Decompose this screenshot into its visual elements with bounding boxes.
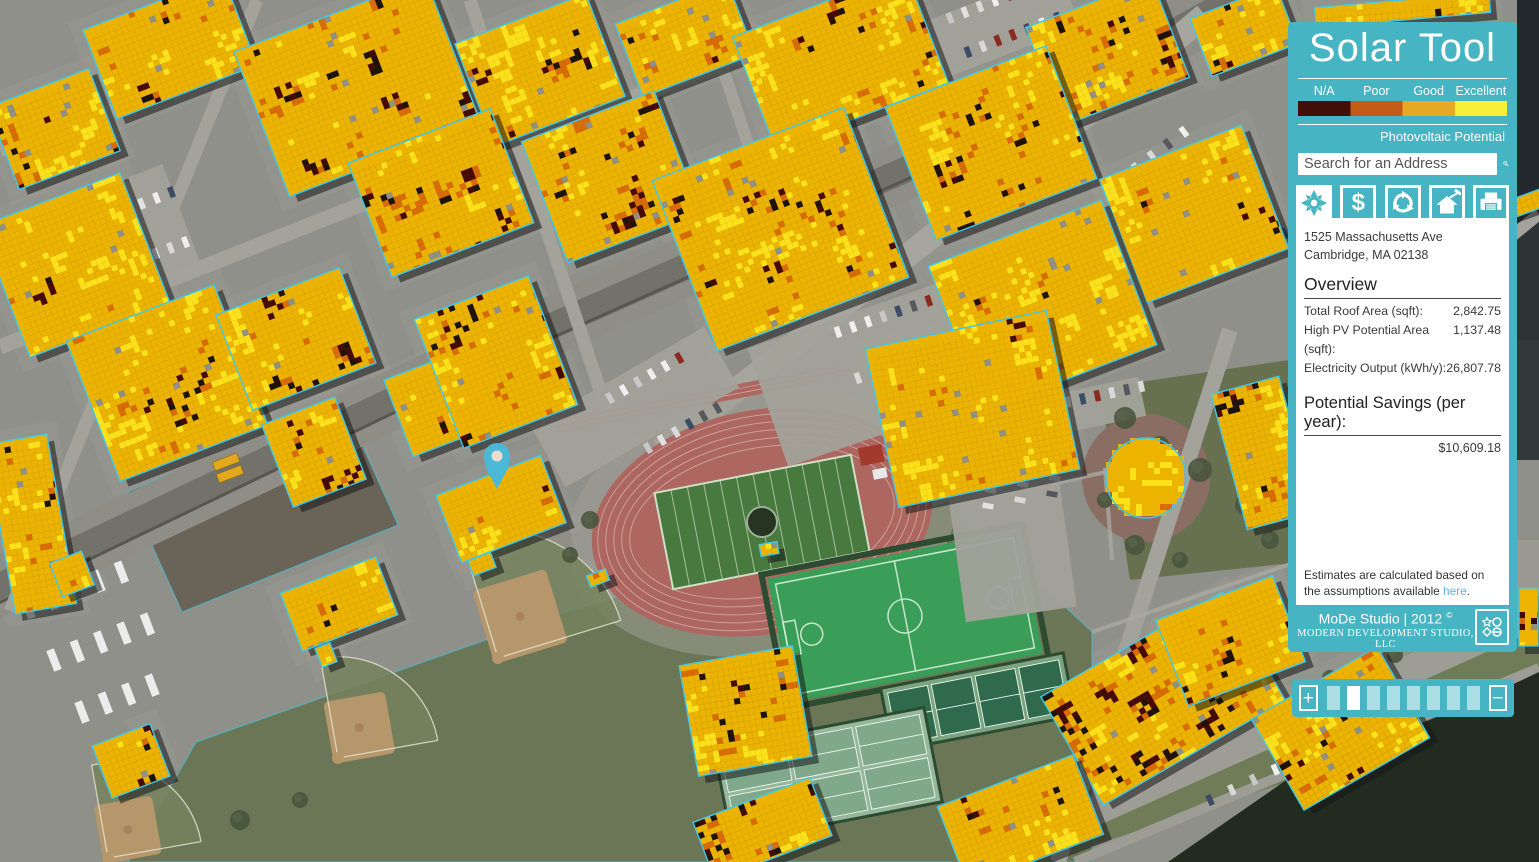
map-pin-center — [492, 451, 503, 462]
divider — [1298, 78, 1507, 79]
divider — [1304, 435, 1501, 436]
divider — [1298, 124, 1507, 125]
assumptions-link[interactable]: here — [1443, 584, 1467, 598]
zoom-level-segment[interactable] — [1467, 686, 1480, 710]
mode-logo — [1475, 609, 1509, 645]
stat-value: 2,842.75 — [1453, 302, 1501, 321]
financial-button[interactable]: $ — [1340, 185, 1376, 221]
savings-heading: Potential Savings (per year): — [1304, 394, 1501, 432]
zoom-level-segment[interactable] — [1347, 686, 1360, 710]
toolbar: $ — [1296, 185, 1509, 221]
search-input[interactable] — [1298, 153, 1497, 175]
solar-layer-button[interactable] — [1296, 185, 1332, 221]
zoom-level-segment[interactable] — [1367, 686, 1380, 710]
stat-row: Electricity Output (kWh/y):26,807.78 — [1304, 359, 1501, 378]
stat-value: 1,137.48 — [1453, 321, 1501, 359]
recycle-button[interactable] — [1385, 185, 1421, 221]
note-text-end: . — [1467, 584, 1470, 598]
assumptions-note: Estimates are calculated based on the as… — [1304, 568, 1501, 599]
legend-label-excellent: Excellent — [1455, 84, 1507, 98]
legend-gradient-bar — [1298, 101, 1507, 116]
stat-row: High PV Potential Area (sqft):1,137.48 — [1304, 321, 1501, 359]
mode-logo-icon — [1480, 615, 1504, 639]
stat-value: 26,807.78 — [1446, 359, 1501, 378]
solar-home-icon — [1433, 189, 1461, 217]
zoom-level-bar — [1327, 686, 1480, 710]
solar-tool-panel: Solar Tool N/A Poor Good Excellent Photo… — [1288, 22, 1517, 652]
legend-label-poor: Poor — [1350, 84, 1402, 98]
zoom-level-segment[interactable] — [1387, 686, 1400, 710]
savings-value: $10,609.18 — [1304, 441, 1501, 455]
printer-icon — [1477, 189, 1505, 217]
zoom-level-segment[interactable] — [1427, 686, 1440, 710]
stats-list: Total Roof Area (sqft):2,842.75High PV P… — [1304, 302, 1501, 378]
stat-label: Total Roof Area (sqft): — [1304, 302, 1423, 321]
solar-home-button[interactable] — [1429, 185, 1465, 221]
legend-label-good: Good — [1403, 84, 1455, 98]
zoom-level-segment[interactable] — [1447, 686, 1460, 710]
stat-label: High PV Potential Area (sqft): — [1304, 321, 1453, 359]
zoom-level-segment[interactable] — [1327, 686, 1340, 710]
legend-label-na: N/A — [1298, 84, 1350, 98]
stat-label: Electricity Output (kWh/y): — [1304, 359, 1446, 378]
legend-caption: Photovoltaic Potential — [1300, 129, 1505, 144]
page-title: Solar Tool — [1288, 26, 1517, 70]
address-line1: 1525 Massachusetts Ave — [1304, 228, 1501, 246]
sun-icon — [1300, 189, 1328, 217]
divider — [1304, 298, 1501, 299]
zoom-in-button[interactable]: + — [1299, 685, 1318, 711]
results-card: 1525 Massachusetts Ave Cambridge, MA 021… — [1296, 218, 1509, 605]
dollar-icon: $ — [1352, 191, 1365, 215]
stat-row: Total Roof Area (sqft):2,842.75 — [1304, 302, 1501, 321]
print-button[interactable] — [1473, 185, 1509, 221]
legend-labels: N/A Poor Good Excellent — [1298, 84, 1507, 98]
zoom-control: + − — [1292, 679, 1514, 717]
panel-footer: MoDe Studio | 2012 © MODERN DEVELOPMENT … — [1288, 605, 1517, 652]
overview-heading: Overview — [1304, 274, 1501, 295]
recycle-icon — [1390, 190, 1416, 216]
search-icon[interactable] — [1503, 152, 1509, 176]
zoom-out-button[interactable]: − — [1489, 685, 1508, 711]
zoom-level-segment[interactable] — [1407, 686, 1420, 710]
address-line2: Cambridge, MA 02138 — [1304, 246, 1501, 264]
copyright-mark: © — [1446, 610, 1452, 620]
